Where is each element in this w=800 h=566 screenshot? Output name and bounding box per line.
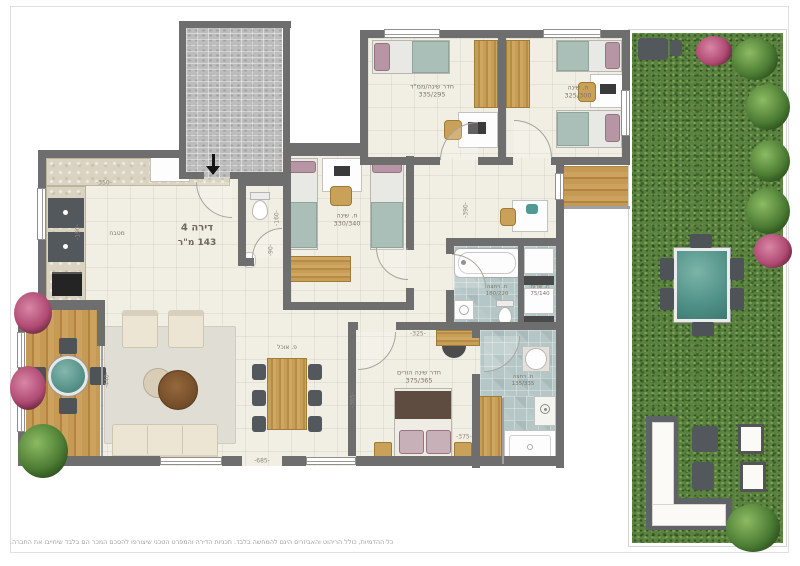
balcony-chair: [59, 398, 77, 414]
washing-machine: [524, 248, 554, 274]
balcony-table: [48, 356, 88, 396]
sofa-cushion-line: [147, 426, 148, 454]
wall-segment: [446, 238, 564, 246]
wall-segment: [472, 374, 480, 468]
dim-living-left: 440: [104, 372, 111, 388]
dining-label: פ. אוכל: [277, 344, 297, 352]
garden-sofa-cushions: [652, 504, 726, 526]
wall-segment: [186, 172, 204, 179]
sink-basin: [459, 305, 469, 315]
plant: [746, 84, 790, 130]
bedroom-safe-label: חדר שינה/ממ"ד 335/295: [410, 83, 454, 100]
wc-toilet-tank: [250, 192, 270, 200]
garden-coffee-table: [692, 462, 714, 490]
round-sink: [525, 348, 547, 370]
wall-segment: [470, 322, 564, 330]
dining-table: [267, 358, 307, 430]
plant: [696, 36, 732, 66]
bed-blanket: [412, 41, 449, 73]
dim-kitchen-side: 190: [75, 224, 82, 240]
plant: [10, 366, 46, 410]
garden-chair: [730, 258, 744, 280]
dim-wc-door: 90: [268, 244, 275, 256]
garden-sofa-cushions: [652, 422, 674, 514]
bed-blanket: [371, 202, 403, 248]
garden-armchair: [740, 462, 766, 492]
wall-segment: [283, 21, 290, 149]
dining-chair: [252, 390, 266, 406]
dim-master-left: 365: [350, 392, 357, 408]
window: [306, 457, 356, 465]
dining-chair: [252, 364, 266, 380]
window: [384, 29, 440, 38]
wall-segment: [283, 302, 414, 310]
wardrobe: [506, 40, 530, 108]
garden-chair: [690, 234, 712, 248]
plant: [750, 140, 790, 182]
wardrobe: [474, 40, 498, 108]
wall-segment: [360, 157, 440, 165]
bed-pillow: [399, 430, 424, 454]
sofa-cushion-line: [182, 426, 183, 454]
sink-dot: [63, 210, 68, 215]
dining-chair: [308, 416, 322, 432]
shower-head-dot: [544, 408, 547, 411]
plant: [746, 188, 790, 234]
bbq-side-table: [670, 40, 682, 56]
window-line: [101, 346, 103, 456]
plant: [732, 38, 778, 80]
deck-edge: [564, 206, 630, 209]
window: [621, 90, 630, 136]
bed-pillow: [426, 430, 451, 454]
wall-segment: [282, 456, 306, 466]
garden-chair: [730, 288, 744, 310]
garden-chair: [692, 322, 714, 336]
bed-pillow: [605, 114, 620, 142]
wall-segment: [179, 21, 291, 28]
bed-blanket: [557, 112, 589, 146]
teal-kettle: [526, 204, 538, 214]
dim-living-bottom: 685: [254, 458, 270, 465]
oven: [52, 272, 82, 296]
apartment-number-label: דירה 4: [181, 223, 213, 234]
garden-chair: [660, 258, 674, 280]
bed-blanket: [287, 202, 317, 248]
wall-segment: [446, 238, 454, 254]
cooktop-dot: [63, 244, 68, 249]
wall-segment: [238, 258, 254, 266]
wall-segment: [238, 178, 246, 266]
bed-pillow: [374, 43, 390, 71]
entrance-arrow-stem: [212, 154, 215, 166]
hall-chair: [500, 208, 516, 226]
wall-segment: [396, 322, 472, 330]
toilet-tank: [496, 300, 514, 307]
kitchen-label: מטבח: [109, 230, 124, 238]
plant: [14, 292, 52, 334]
service-room-label: ח. שרות 75/140: [530, 284, 549, 298]
window: [37, 188, 46, 240]
wall-segment: [556, 246, 564, 468]
master-wardrobe: [478, 396, 502, 464]
dim-hall: 390: [463, 202, 470, 218]
disclaimer-text: כל ההדמיות, כולל הריהוט והאביזרים הינם ל…: [10, 538, 393, 546]
armchair: [122, 310, 158, 348]
bedroom-right-label: ח. שינה 325/300: [564, 84, 591, 101]
bathroom-top-label: ח. רחצה 180/220: [486, 284, 509, 298]
stairwell: [186, 28, 282, 178]
window: [555, 173, 564, 200]
dining-chair: [308, 390, 322, 406]
balcony-chair: [59, 338, 77, 354]
floor-plan: דירה 4 143 מ"ר מטבח פ. אוכל חדר שינה/ממ"…: [0, 0, 800, 566]
laptop: [600, 84, 616, 94]
dim-wc-side: 160: [274, 210, 281, 226]
wc-toilet: [252, 200, 268, 220]
master-bedroom-label: חדר שינה הורים 375/365: [397, 369, 441, 386]
entrance-arrow-icon: [206, 166, 220, 175]
drain: [527, 444, 533, 450]
wall-segment: [356, 456, 564, 466]
closet-edge: [502, 398, 504, 464]
wall-segment: [283, 149, 291, 310]
armchair: [168, 310, 204, 348]
plant: [726, 504, 780, 552]
master-bed-blanket: [395, 391, 451, 419]
bed-blanket: [557, 41, 589, 71]
bbq-grill: [638, 38, 668, 60]
garden-coffee-table: [692, 426, 718, 452]
apartment-area-label: 143 מ"ר: [178, 238, 217, 248]
wall-segment: [551, 157, 630, 165]
wall-segment: [518, 246, 524, 330]
bed-pillow: [605, 42, 620, 69]
dining-chair: [308, 364, 322, 380]
wall-segment: [348, 322, 358, 330]
dim-master-right: 375: [456, 434, 472, 441]
wall-segment: [222, 456, 242, 466]
bedroom-middle-label: ח. שינה 330/340: [333, 212, 360, 229]
wall-segment: [406, 156, 414, 250]
bed-pillow: [288, 161, 316, 173]
dim-kitchen-top: 350: [96, 180, 112, 187]
window: [543, 29, 601, 38]
wall-segment: [283, 143, 368, 156]
wall-segment: [38, 150, 186, 158]
coffee-table-wood: [158, 370, 198, 410]
desk-chair: [330, 186, 352, 206]
dining-chair: [252, 416, 266, 432]
bathroom-bottom-label: ח. רחצה 135/335: [512, 374, 535, 388]
side-deck: [564, 166, 630, 208]
dim-master-top: 325: [410, 331, 426, 338]
plant: [18, 424, 68, 478]
dresser: [287, 256, 351, 282]
plant: [754, 234, 792, 268]
wall-segment: [498, 38, 506, 165]
window: [160, 457, 222, 465]
garden-chair: [660, 288, 674, 310]
wall-segment: [97, 300, 105, 346]
wall-segment: [472, 330, 480, 338]
window: [17, 332, 25, 368]
laptop: [334, 166, 350, 176]
wall-segment: [478, 157, 513, 165]
garden-dining-table: [674, 248, 730, 322]
garden-armchair: [738, 424, 764, 454]
